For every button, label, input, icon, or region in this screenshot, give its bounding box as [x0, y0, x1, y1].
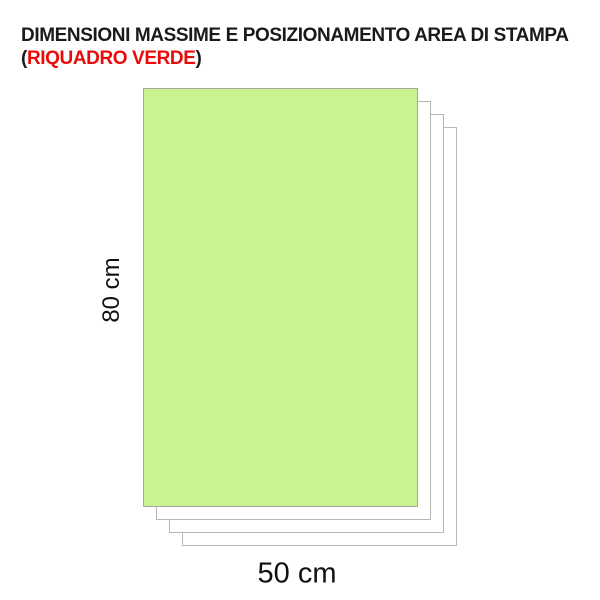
page-title: DIMENSIONI MASSIME E POSIZIONAMENTO AREA…	[21, 24, 569, 70]
print-area-diagram: DIMENSIONI MASSIME E POSIZIONAMENTO AREA…	[0, 0, 600, 600]
width-dimension-label: 50 cm	[258, 558, 337, 591]
title-line2-highlight: RIQUADRO VERDE	[27, 48, 196, 69]
print-area-rect	[143, 88, 418, 507]
title-line1: DIMENSIONI MASSIME E POSIZIONAMENTO AREA…	[21, 25, 569, 46]
height-dimension-label: 80 cm	[98, 257, 126, 322]
title-line2-paren-close: )	[196, 48, 202, 69]
title-line2: (RIQUADRO VERDE)	[21, 48, 201, 69]
